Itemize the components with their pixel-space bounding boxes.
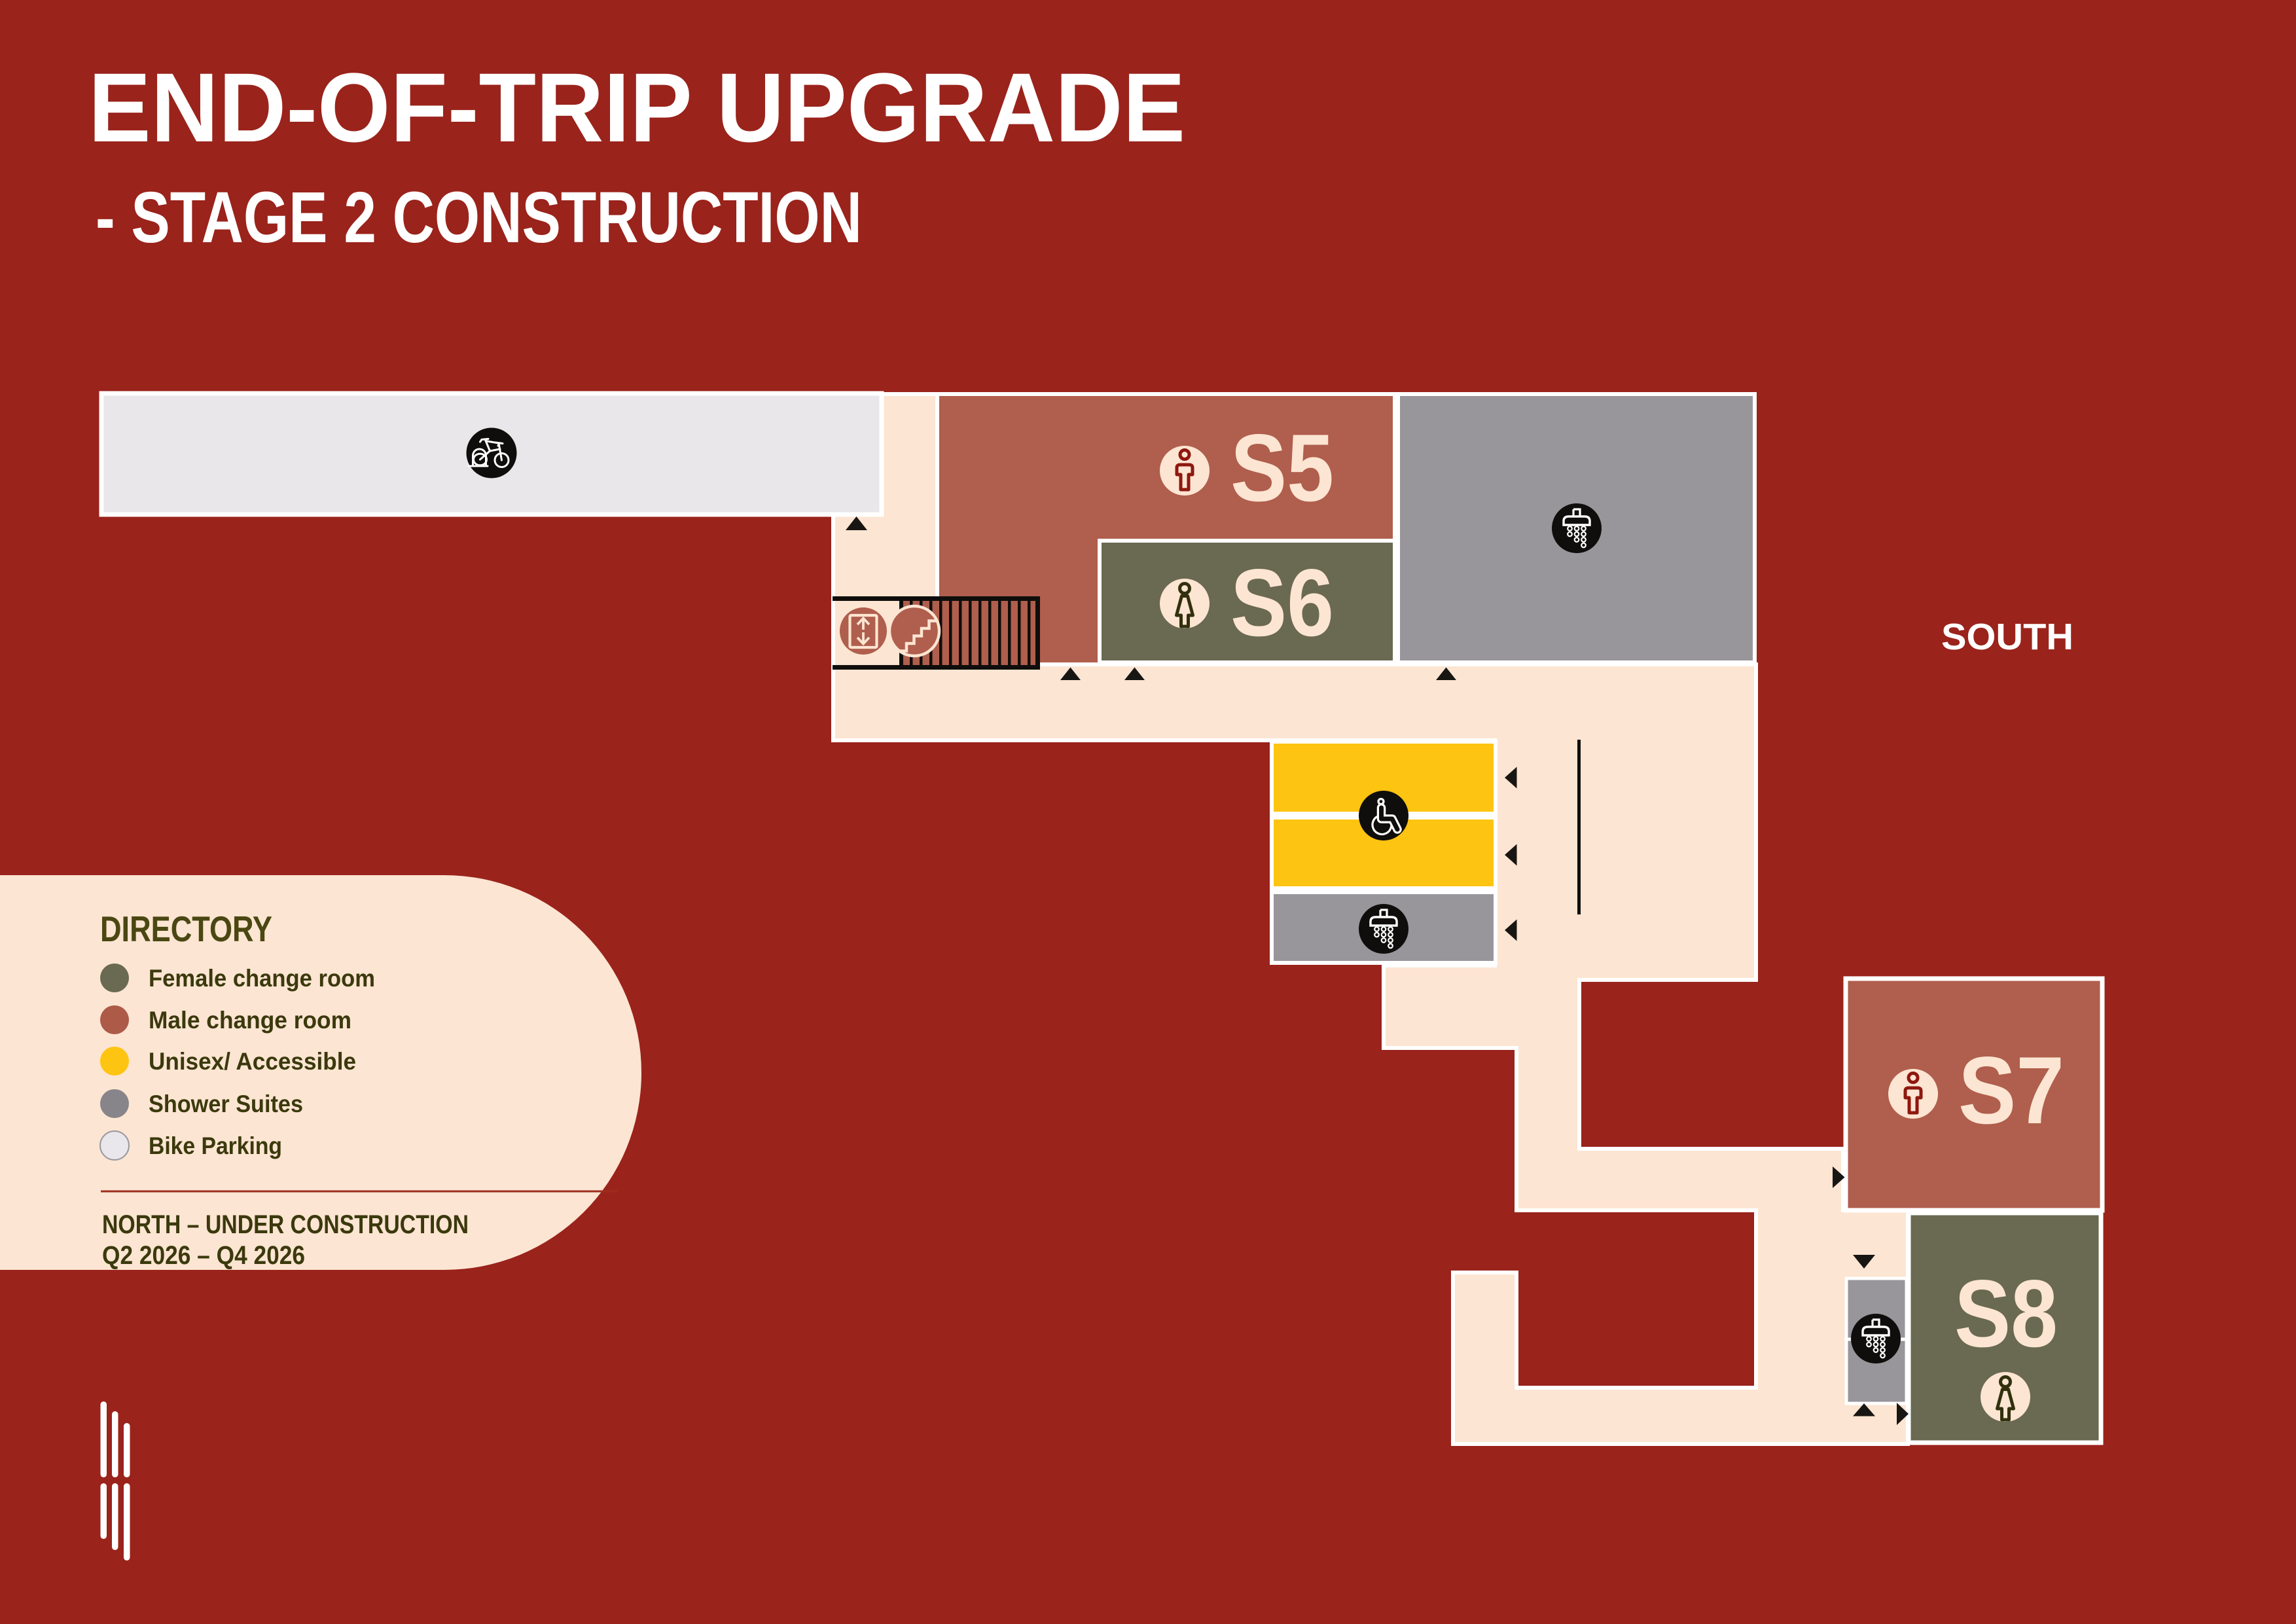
svg-text:DIRECTORY: DIRECTORY xyxy=(100,909,272,949)
svg-text:Unisex/ Accessible: Unisex/ Accessible xyxy=(149,1048,356,1075)
svg-text:Shower Suites: Shower Suites xyxy=(149,1091,303,1117)
svg-text:Bike Parking: Bike Parking xyxy=(149,1132,282,1159)
svg-text:S7: S7 xyxy=(1958,1037,2064,1144)
svg-text:END-OF-TRIP UPGRADE: END-OF-TRIP UPGRADE xyxy=(88,52,1185,162)
svg-text:S5: S5 xyxy=(1230,414,1334,521)
svg-text:- STAGE 2 CONSTRUCTION: - STAGE 2 CONSTRUCTION xyxy=(96,177,862,258)
svg-text:NORTH – UNDER CONSTRUCTION: NORTH – UNDER CONSTRUCTION xyxy=(102,1210,469,1239)
svg-text:SOUTH: SOUTH xyxy=(1941,616,2073,658)
svg-text:Male change room: Male change room xyxy=(149,1007,351,1034)
svg-text:S6: S6 xyxy=(1230,549,1334,656)
svg-text:S8: S8 xyxy=(1954,1260,2058,1367)
svg-text:Female change room: Female change room xyxy=(149,965,375,992)
svg-text:Q2 2026 – Q4 2026: Q2 2026 – Q4 2026 xyxy=(102,1241,305,1270)
